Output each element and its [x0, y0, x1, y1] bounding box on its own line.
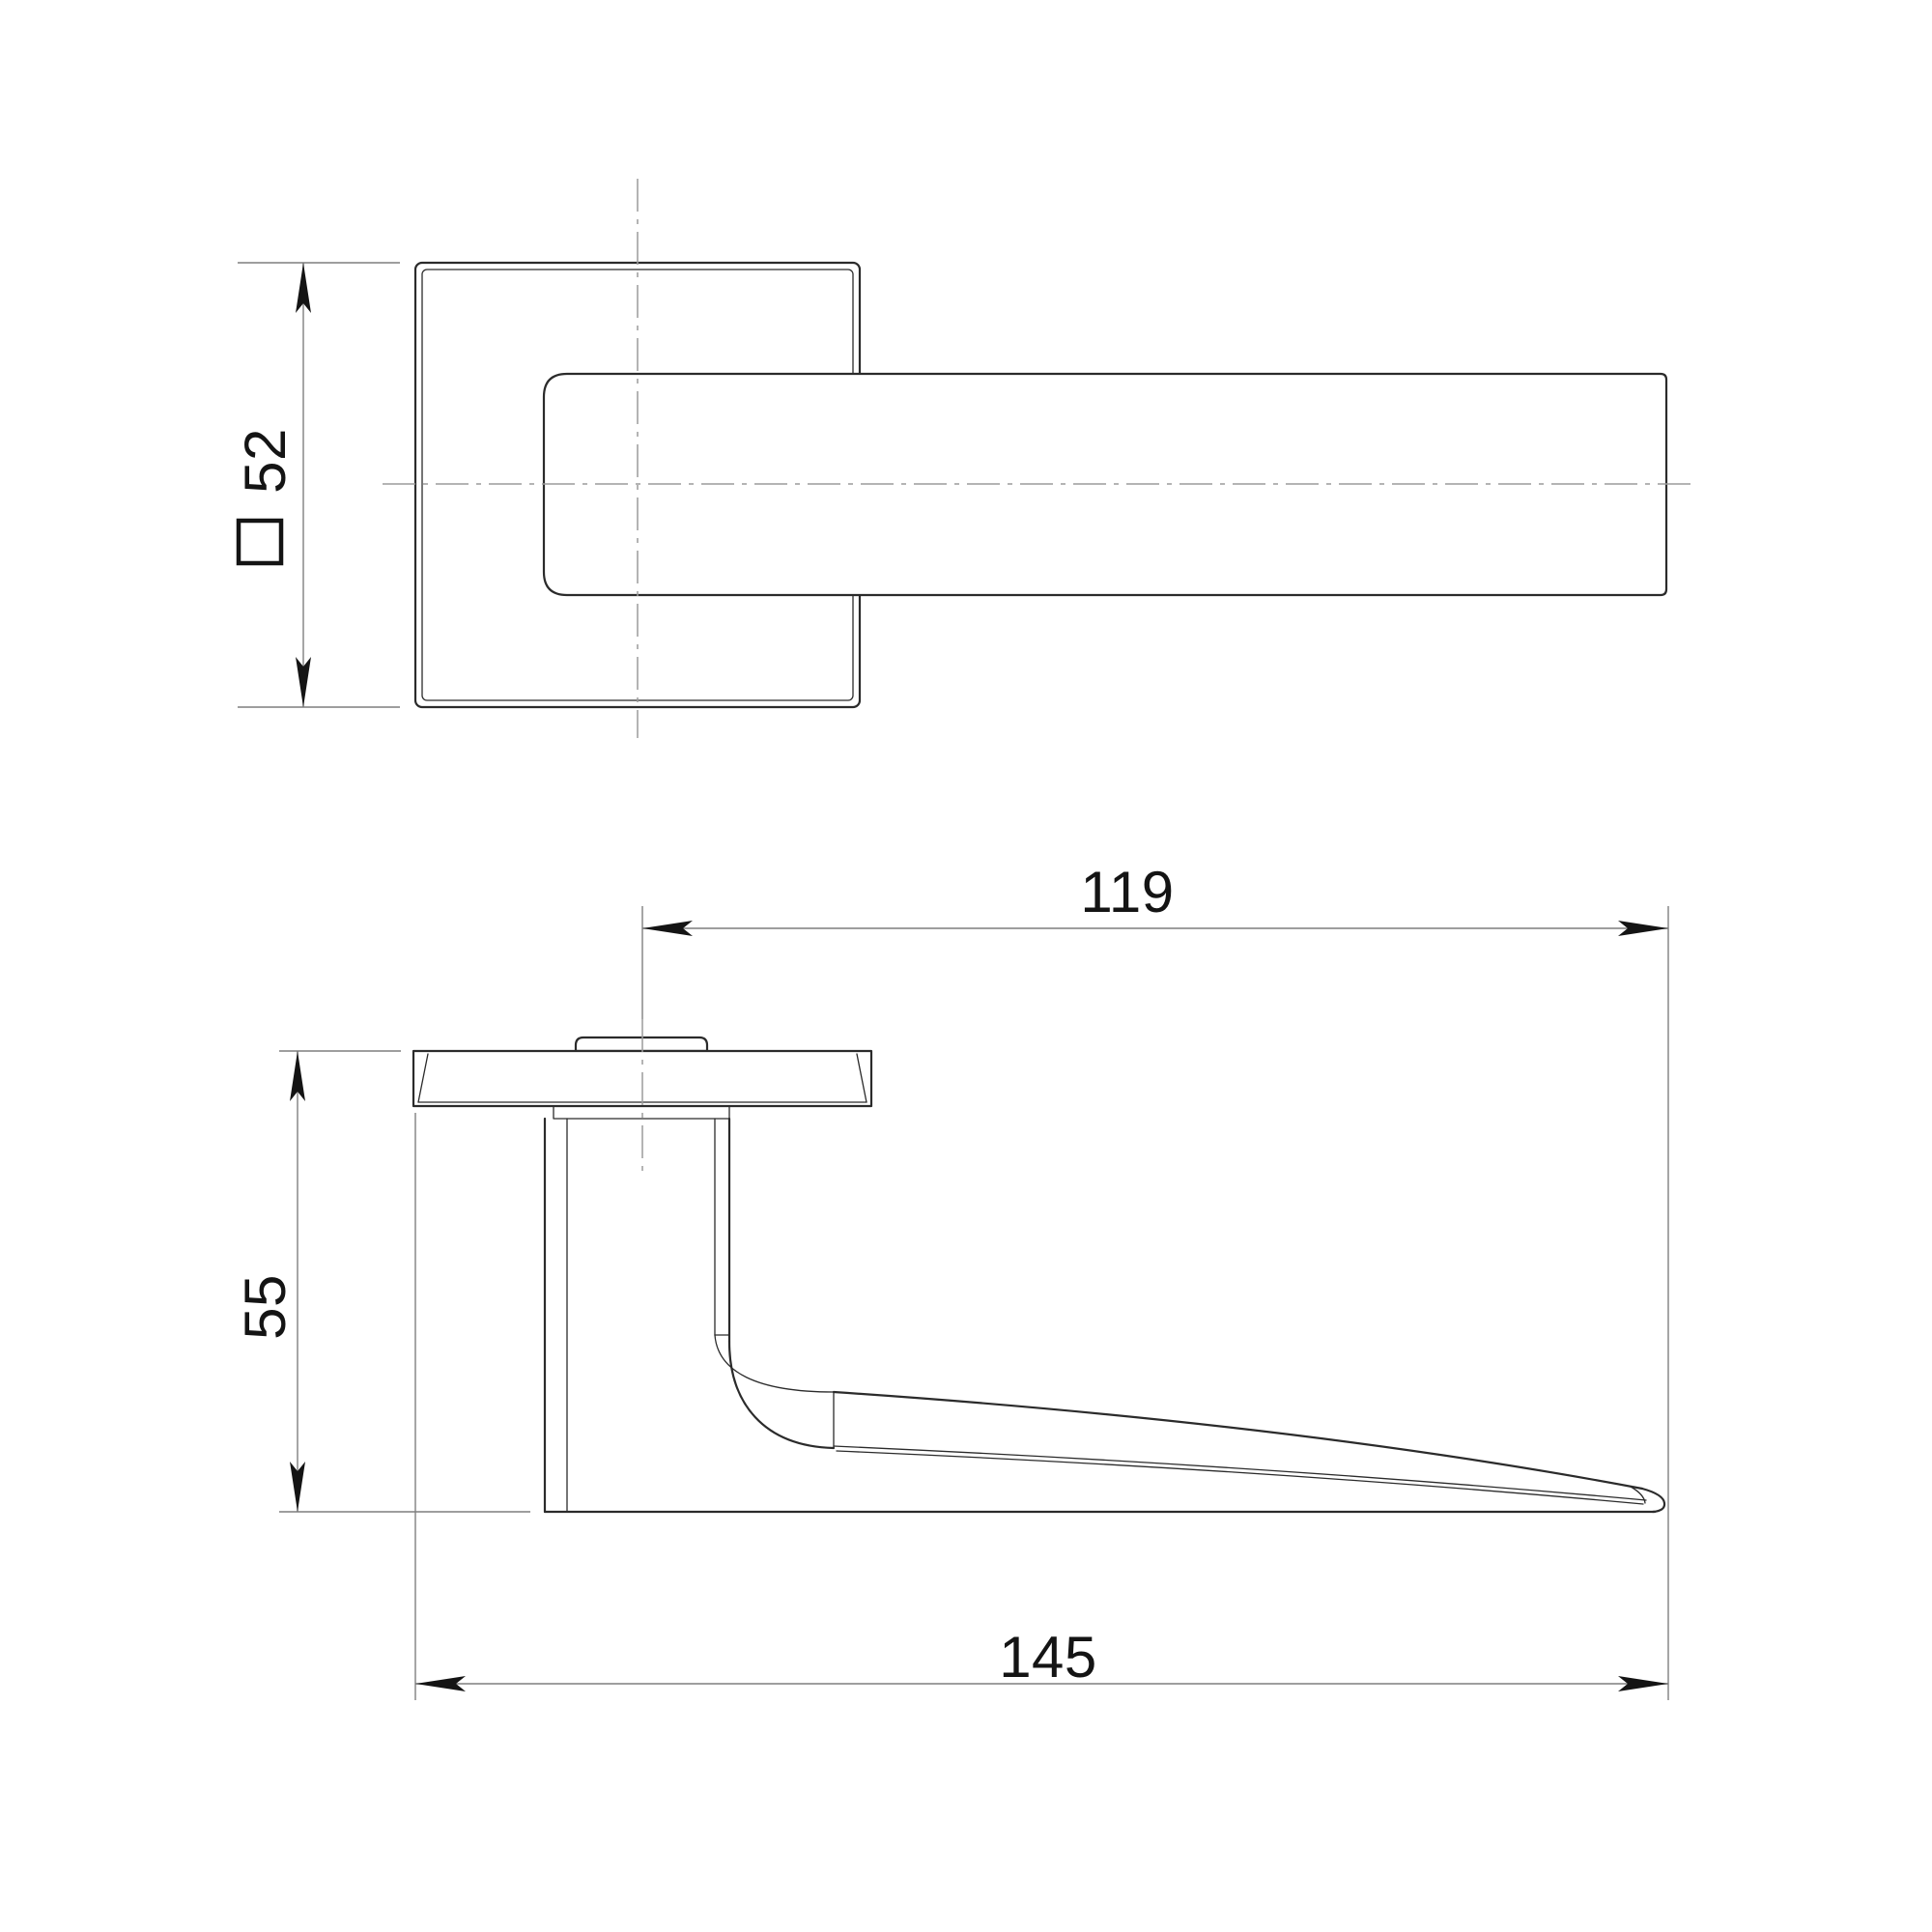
dimension-grip-length: 119 — [642, 860, 1668, 1700]
dimension-label-overall-length: 145 — [999, 1625, 1097, 1690]
dimension-overall-length: 145 — [415, 1113, 1668, 1700]
drawing-sheet: 52 — [0, 0, 1932, 1932]
square-symbol — [239, 521, 281, 563]
dimension-label-projection: 55 — [233, 1274, 298, 1340]
dimension-projection-height: 55 — [233, 1051, 530, 1512]
technical-drawing: 52 — [0, 0, 1932, 1932]
grip-top-edge — [834, 1392, 1642, 1489]
bend-inner-curve — [715, 1335, 834, 1392]
side-view: 119 55 145 — [233, 860, 1668, 1700]
collar — [554, 1106, 729, 1119]
front-view: 52 — [233, 179, 1698, 738]
dimension-label-grip-length: 119 — [1080, 860, 1174, 924]
dimension-rose-size: 52 — [233, 263, 400, 707]
bend-outer-curve — [729, 1342, 834, 1448]
spindle-cap — [576, 1037, 707, 1051]
grip-crease-lower — [837, 1451, 1643, 1504]
dimension-label-rose-size: 52 — [233, 428, 298, 494]
